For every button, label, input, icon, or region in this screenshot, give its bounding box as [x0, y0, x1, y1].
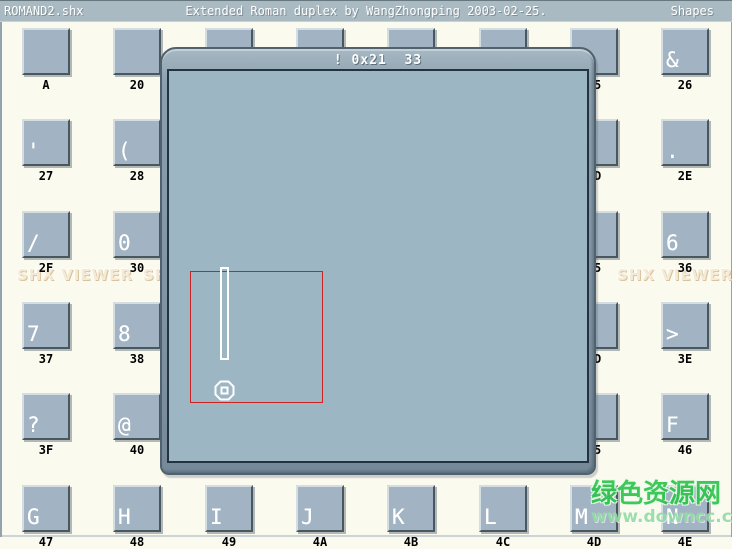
shape-tile[interactable]: J [296, 485, 344, 532]
shape-code-label: 28 [107, 170, 167, 182]
shape-tile[interactable]: L [479, 485, 527, 532]
shape-tile[interactable]: ? [22, 393, 70, 440]
shape-tile[interactable] [22, 28, 70, 75]
glyph-preview-canvas[interactable] [167, 69, 589, 463]
shape-glyph: F [666, 415, 679, 436]
shape-glyph: J [301, 507, 314, 528]
site-watermark-url: www.downcc.com [591, 509, 732, 526]
shape-tile[interactable]: @ [113, 393, 161, 440]
site-watermark-name: 绿色资源网 [591, 481, 732, 507]
shape-code-label: 3F [16, 444, 76, 456]
shape-code-label: 3E [655, 353, 715, 365]
shape-code-label: 2F [16, 262, 76, 274]
shape-glyph: H [118, 507, 131, 528]
shape-glyph: 6 [666, 233, 679, 254]
shape-code-label: 4A [290, 536, 350, 548]
glyph-outline-dot [214, 380, 235, 401]
shape-code-label: 49 [199, 536, 259, 548]
shape-tile[interactable]: . [661, 119, 709, 166]
shape-code-label: 47 [16, 536, 76, 548]
shape-code-label: 27 [16, 170, 76, 182]
shape-glyph: @ [118, 415, 131, 436]
shape-tile[interactable]: G [22, 485, 70, 532]
shape-glyph: 7 [27, 324, 40, 345]
shape-code-label: 30 [107, 262, 167, 274]
shape-code-label: 37 [16, 353, 76, 365]
shape-glyph: M [575, 507, 588, 528]
shape-code-label: 36 [655, 262, 715, 274]
shape-glyph: 0 [118, 233, 131, 254]
shape-code-label: 4E [655, 536, 715, 548]
shape-tile[interactable]: F [661, 393, 709, 440]
shape-tile[interactable]: > [661, 302, 709, 349]
shape-tile[interactable] [113, 28, 161, 75]
section-label: Shapes [671, 1, 714, 21]
selection-box [190, 271, 323, 403]
site-watermark: 绿色资源网 www.downcc.com [591, 481, 732, 526]
shape-glyph: ' [27, 141, 40, 162]
glyph-outline-bar [220, 267, 229, 360]
shape-code-label: 4D [564, 536, 624, 548]
shape-code-label: 48 [107, 536, 167, 548]
shape-tile[interactable]: ( [113, 119, 161, 166]
shape-glyph: ( [118, 141, 131, 162]
shape-glyph: K [392, 507, 405, 528]
shape-glyph: 8 [118, 324, 131, 345]
title-bar: ROMAND2.shx Extended Roman duplex by Wan… [0, 0, 732, 21]
shape-code-label: 4C [473, 536, 533, 548]
shape-tile[interactable]: H [113, 485, 161, 532]
shape-code-label: 46 [655, 444, 715, 456]
shape-glyph: ? [27, 415, 40, 436]
shape-code-label: 4B [381, 536, 441, 548]
shape-glyph: > [666, 324, 679, 345]
dialog-title-bar[interactable]: ! 0x21 33 [162, 52, 594, 69]
shape-tile[interactable]: & [661, 28, 709, 75]
shape-code-label: 40 [107, 444, 167, 456]
shape-tile[interactable]: 7 [22, 302, 70, 349]
shape-tile[interactable]: I [205, 485, 253, 532]
shape-code-label: 26 [655, 79, 715, 91]
shape-glyph: / [27, 233, 40, 254]
shape-glyph: G [27, 507, 40, 528]
shape-glyph: . [666, 141, 679, 162]
shape-tile[interactable]: 6 [661, 211, 709, 258]
shape-glyph: I [210, 507, 223, 528]
shape-tile[interactable]: ' [22, 119, 70, 166]
shape-code-label: 20 [107, 79, 167, 91]
glyph-preview-dialog: ! 0x21 33 [160, 47, 596, 475]
font-description: Extended Roman duplex by WangZhongping 2… [0, 1, 732, 21]
shape-tile[interactable]: 0 [113, 211, 161, 258]
shape-tile[interactable]: / [22, 211, 70, 258]
shape-glyph: & [666, 50, 679, 71]
shape-tile[interactable]: K [387, 485, 435, 532]
shape-code-label: A [16, 79, 76, 91]
shape-code-label: 2E [655, 170, 715, 182]
shape-glyph: L [484, 507, 497, 528]
shape-tile[interactable]: 8 [113, 302, 161, 349]
shape-code-label: 38 [107, 353, 167, 365]
